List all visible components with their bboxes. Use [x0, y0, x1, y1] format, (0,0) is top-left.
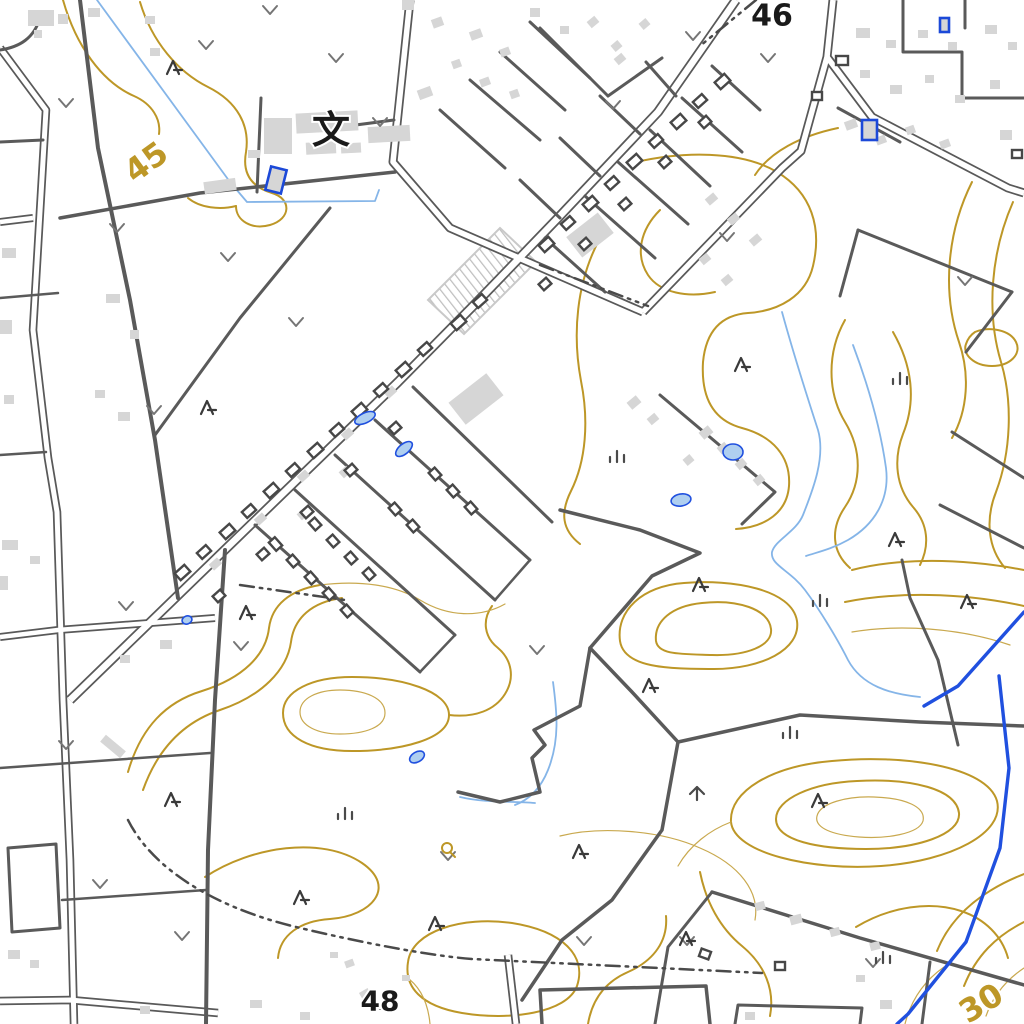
building	[880, 1000, 892, 1009]
building	[856, 975, 865, 982]
building	[1012, 150, 1022, 158]
building	[120, 655, 130, 663]
building	[1008, 42, 1017, 50]
building	[940, 18, 949, 32]
building	[145, 16, 155, 24]
building	[118, 412, 130, 421]
pond	[723, 444, 743, 460]
building	[264, 118, 292, 154]
building	[58, 14, 68, 24]
building	[106, 294, 120, 303]
building	[948, 42, 957, 50]
building	[860, 70, 870, 78]
building	[88, 8, 100, 17]
building	[2, 540, 18, 550]
elevation-label-46: 46	[751, 0, 793, 34]
building	[530, 8, 540, 17]
building	[28, 10, 54, 26]
building	[560, 26, 569, 34]
building	[0, 320, 12, 334]
elevation-label-48: 48	[361, 985, 400, 1018]
building	[140, 1006, 150, 1014]
building	[160, 640, 172, 649]
building	[0, 576, 8, 590]
building	[30, 556, 40, 564]
building	[30, 960, 39, 968]
building	[745, 1012, 755, 1020]
building	[862, 120, 877, 140]
building	[330, 952, 338, 958]
building	[8, 950, 20, 959]
building	[2, 248, 16, 258]
building	[300, 1012, 310, 1020]
building	[699, 949, 711, 960]
building	[890, 85, 902, 94]
building	[836, 56, 848, 65]
building	[955, 95, 965, 103]
building	[248, 150, 260, 158]
building	[918, 30, 928, 38]
map-viewport[interactable]: 46 45 48 30 文	[0, 0, 1024, 1024]
building	[925, 75, 934, 83]
building	[130, 330, 139, 339]
building	[775, 962, 785, 970]
building	[150, 48, 160, 56]
building	[368, 125, 411, 143]
building	[402, 975, 410, 981]
building	[250, 1000, 262, 1008]
building	[34, 30, 42, 38]
building	[886, 40, 896, 48]
building	[985, 25, 997, 34]
building	[990, 80, 1000, 89]
building	[95, 390, 105, 398]
building	[856, 28, 870, 38]
topo-map[interactable]: 46 45 48 30 文	[0, 0, 1024, 1024]
school-icon: 文	[312, 108, 350, 152]
building	[812, 92, 822, 100]
building	[1000, 130, 1012, 140]
building	[402, 0, 414, 10]
building	[4, 395, 14, 404]
